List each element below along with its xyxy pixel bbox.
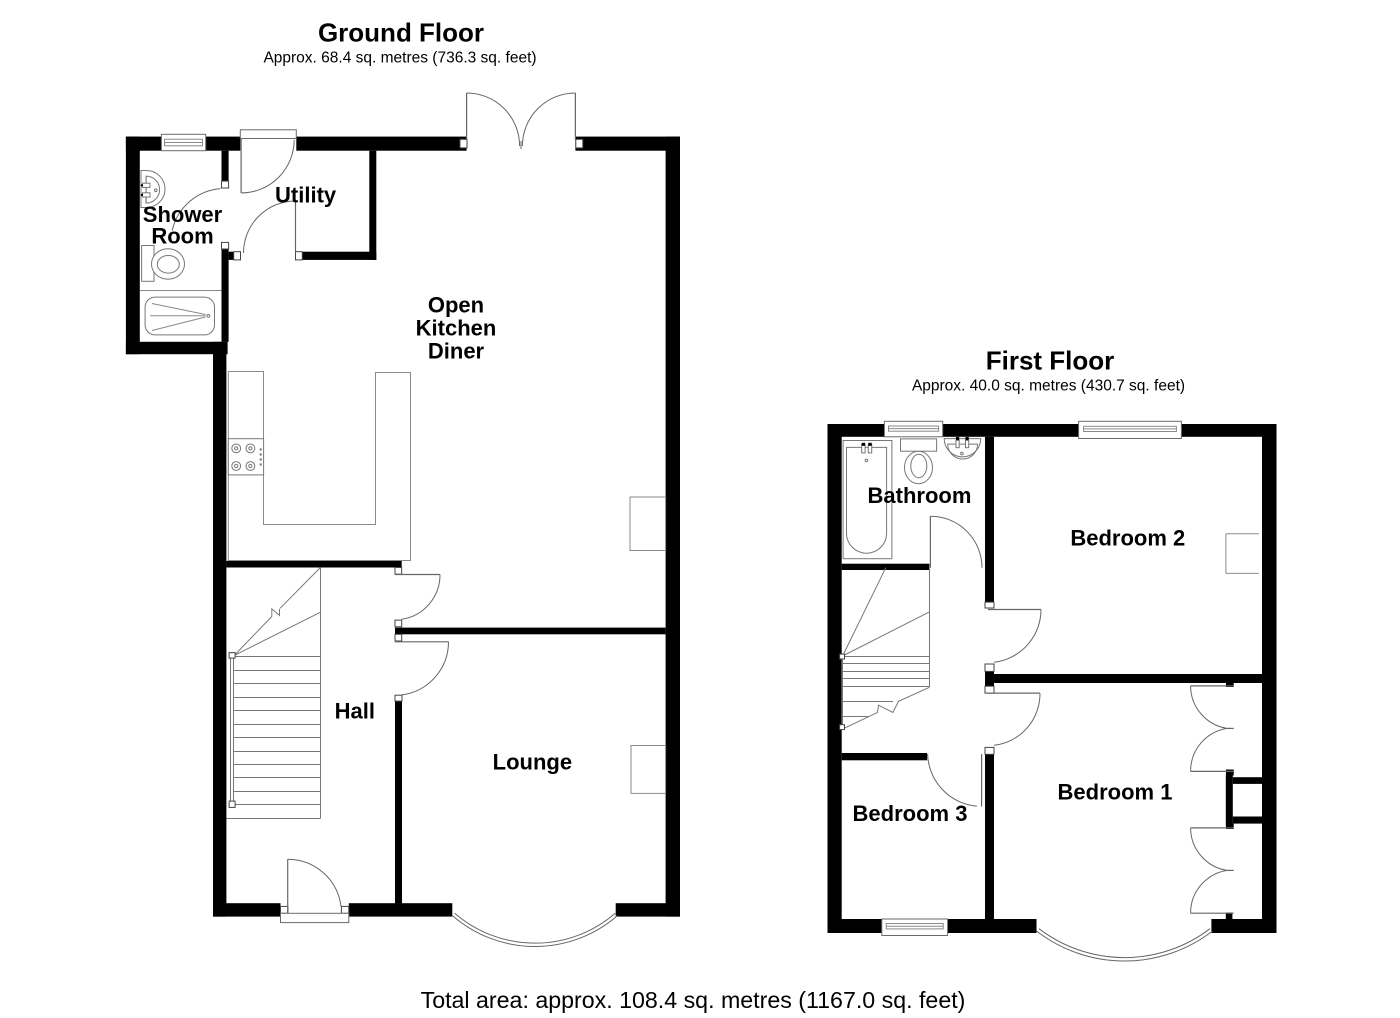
svg-text:Bedroom 3: Bedroom 3 [853, 801, 968, 826]
svg-text:Bedroom 2: Bedroom 2 [1070, 526, 1185, 551]
svg-text:Bedroom 1: Bedroom 1 [1058, 780, 1173, 805]
svg-text:Hall: Hall [335, 699, 375, 724]
svg-text:Approx. 40.0 sq. metres (430.7: Approx. 40.0 sq. metres (430.7 sq. feet) [912, 377, 1185, 394]
svg-text:Room: Room [151, 224, 213, 249]
svg-text:Kitchen: Kitchen [416, 316, 497, 341]
svg-text:Lounge: Lounge [493, 750, 572, 775]
svg-text:Approx. 68.4 sq. metres (736.3: Approx. 68.4 sq. metres (736.3 sq. feet) [263, 49, 536, 66]
svg-text:Diner: Diner [428, 338, 485, 363]
svg-text:Total area: approx. 108.4 sq.: Total area: approx. 108.4 sq. metres (11… [421, 987, 966, 1013]
svg-text:Utility: Utility [275, 183, 337, 208]
svg-text:Bathroom: Bathroom [868, 483, 972, 508]
svg-text:Open: Open [428, 292, 484, 317]
svg-text:Ground Floor: Ground Floor [318, 18, 484, 48]
svg-text:First Floor: First Floor [986, 346, 1115, 376]
